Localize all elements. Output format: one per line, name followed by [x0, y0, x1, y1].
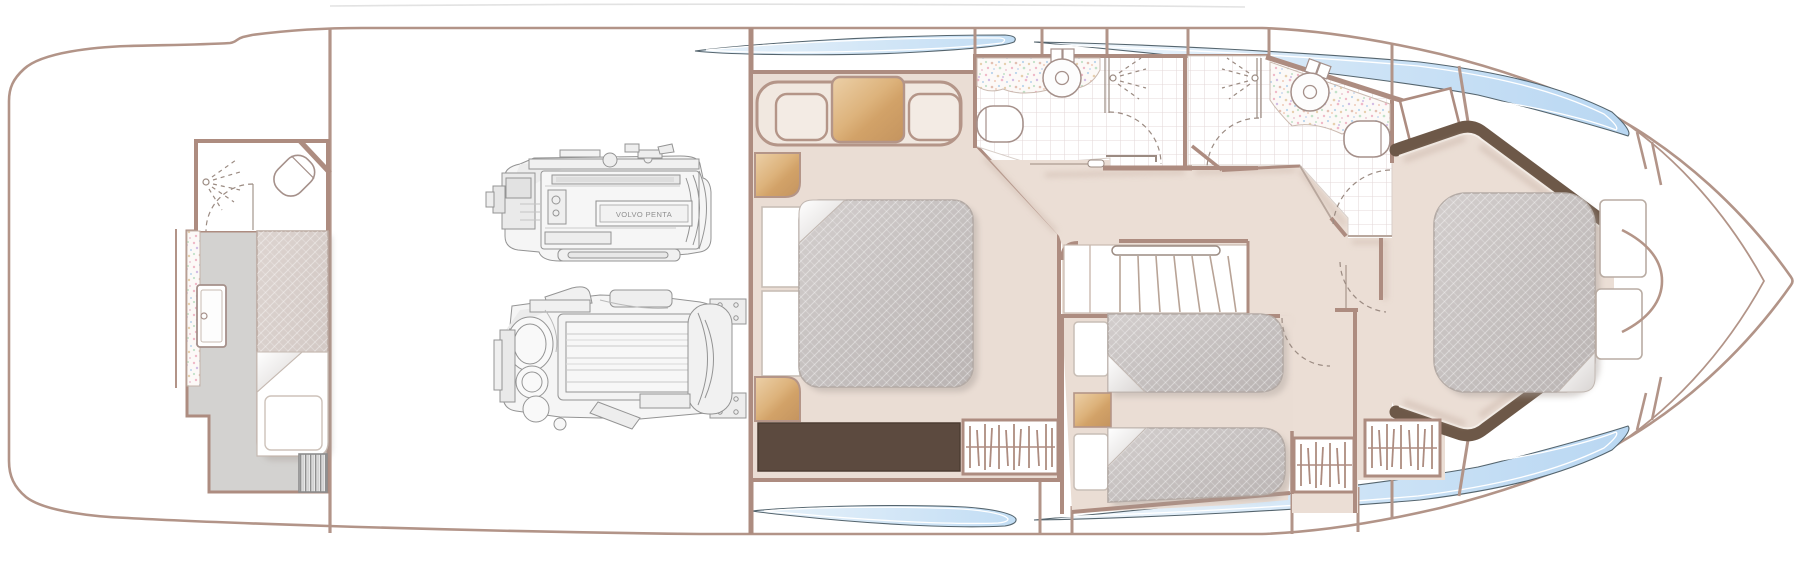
svg-text:VOLVO PENTA: VOLVO PENTA — [616, 210, 672, 219]
